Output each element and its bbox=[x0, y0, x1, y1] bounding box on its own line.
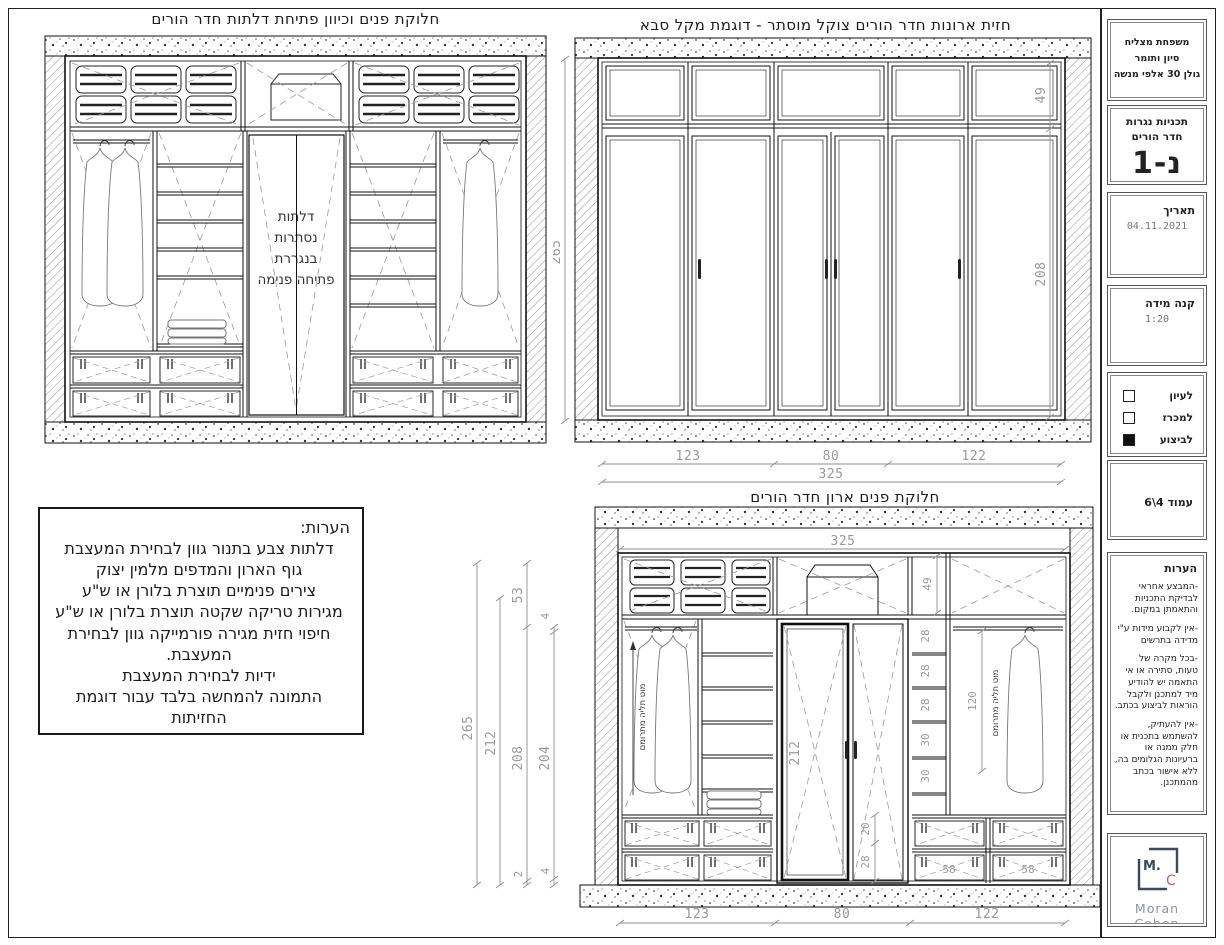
storage-boxes bbox=[76, 66, 519, 123]
note-line: ידיות לבחירת המעצבת bbox=[48, 665, 350, 686]
dim-label: 122 bbox=[975, 907, 1000, 922]
tb-note-item: -אין לקבוע מידות ע"י מדידה בתרשים bbox=[1111, 624, 1203, 647]
status-option-execution[interactable]: לביצוע bbox=[1111, 434, 1203, 446]
tb-note-item: -המבצע אחראי לבדיקת התכניות והתאמתן במקו… bbox=[1111, 582, 1203, 617]
plan-code: נ-1 bbox=[1111, 149, 1203, 179]
folded-towels bbox=[707, 791, 761, 815]
dim-label: 122 bbox=[962, 449, 987, 464]
note-line: צירים פנימיים תוצרת בלורן או ש"ע bbox=[48, 580, 350, 601]
dim-label: 28 bbox=[919, 664, 932, 677]
shelves bbox=[702, 653, 773, 792]
note-line: חיפוי חזית מגירה פורמייקה גוון לבחירת המ… bbox=[48, 623, 350, 665]
cabinet-structure bbox=[598, 58, 1065, 420]
dim-label: 208 bbox=[511, 746, 526, 771]
interior-front-drawing: 325 bbox=[455, 503, 1100, 943]
dim-label: 53 bbox=[511, 587, 526, 604]
general-notes-box: הערות: דלתות צבע בתנור גוון לבחירת המעצב… bbox=[38, 507, 364, 735]
checkbox-checked-icon[interactable] bbox=[1123, 434, 1135, 446]
status-option-review[interactable]: לעיון bbox=[1111, 390, 1203, 402]
checkbox-icon[interactable] bbox=[1123, 390, 1135, 402]
dim-left-labels: 265 212 208 204 53 4 2 4 bbox=[461, 587, 553, 878]
dim-label: 212 bbox=[788, 741, 803, 766]
scale-value: 1:20 bbox=[1111, 314, 1203, 325]
dim-label: 30 bbox=[919, 733, 932, 746]
tb-notes-title: הערות bbox=[1111, 556, 1203, 575]
project-address: גולן 30 אלפי מנשה bbox=[1111, 67, 1203, 83]
titleblock-page: עמוד 4\6 bbox=[1107, 460, 1207, 540]
dim-label: 80 bbox=[834, 907, 851, 922]
logo-initial-c: C bbox=[1166, 873, 1176, 889]
tb-note-item: -אין להעתיק, להשתמש בתכנית או חלק ממנה א… bbox=[1111, 720, 1203, 790]
dim-label: 325 bbox=[831, 534, 856, 549]
hanging-rods bbox=[73, 140, 518, 143]
titleblock-separator bbox=[1100, 8, 1102, 937]
titleblock-plan-type: תכניות נגרות חדר הורים נ-1 bbox=[1107, 105, 1207, 185]
date-value: 04.11.2021 bbox=[1111, 221, 1203, 232]
logo-initial-m: M. bbox=[1143, 859, 1161, 874]
status-label: לעיון bbox=[1169, 390, 1193, 402]
center-door: 212 20 28 bbox=[777, 619, 908, 884]
status-option-tender[interactable]: למכרז bbox=[1111, 412, 1203, 424]
dim-left-column bbox=[473, 560, 558, 888]
shelf-dim-labels: 49 28 28 28 30 30 bbox=[919, 553, 941, 783]
dim-label: 28 bbox=[919, 629, 932, 642]
titleblock-scale: קנה מידה 1:20 bbox=[1107, 285, 1207, 366]
dim-label: 123 bbox=[685, 907, 710, 922]
titleblock-project: משפחת מצליח סיון ותומר גולן 30 אלפי מנשה bbox=[1107, 19, 1207, 101]
box-item bbox=[271, 74, 341, 120]
plan-room: חדר הורים bbox=[1111, 130, 1203, 145]
dim-label: 28 bbox=[859, 855, 872, 868]
dim-label: 58 bbox=[1021, 863, 1034, 876]
note-line: התמונה להמחשה בלבד עבור דוגמת החזיתות bbox=[48, 686, 350, 728]
dim-label: 49 bbox=[921, 577, 934, 590]
titleblock-logo: M. C Moran Cohen עיצוב ותיכנון פנים bbox=[1107, 833, 1207, 927]
interior-plan-drawing: דלתות נסתרות בנגררת פתיחה פנימה bbox=[43, 24, 548, 449]
dim-top-width: 325 bbox=[616, 534, 1069, 552]
plan-type: תכניות נגרות bbox=[1111, 115, 1203, 130]
dim-label: 80 bbox=[823, 449, 840, 464]
titleblock-notes: הערות -המבצע אחראי לבדיקת התכניות והתאמת… bbox=[1107, 552, 1207, 815]
door-handles bbox=[698, 259, 961, 279]
dim-label: 2 bbox=[512, 871, 525, 878]
dim-label: 20 bbox=[859, 822, 872, 835]
front-elevation-drawing: 265 49 208 123 80 122 325 bbox=[553, 24, 1098, 489]
dim-label: 265 bbox=[461, 716, 476, 741]
dim-label: 120 bbox=[966, 691, 979, 711]
notes-title: הערות: bbox=[48, 517, 350, 538]
project-clients: סיון ותומר bbox=[1111, 51, 1203, 67]
status-label: למכרז bbox=[1163, 412, 1193, 424]
folded-towels bbox=[168, 320, 226, 344]
dim-label: 208 bbox=[1034, 262, 1049, 287]
drawing-sheet: חלוקת פנים וכיוון פתיחת דלתות חדר הורים … bbox=[0, 0, 1224, 945]
drawers bbox=[73, 357, 518, 416]
status-label: לביצוע bbox=[1160, 434, 1193, 446]
dim-label: 265 bbox=[553, 240, 564, 265]
transom-panels bbox=[606, 66, 1057, 120]
rod-label: מוט תליה מתרומם bbox=[638, 684, 648, 751]
dim-label: 4 bbox=[539, 867, 552, 874]
drawers bbox=[622, 815, 1066, 883]
dim-label: 49 bbox=[1034, 87, 1049, 104]
note-line: דלתות צבע בתנור גוון לבחירת המעצבת bbox=[48, 538, 350, 559]
box-item bbox=[807, 565, 878, 615]
titleblock-status: לעיון למכרז לביצוע bbox=[1107, 372, 1207, 457]
dim-label: 204 bbox=[538, 746, 553, 771]
logo-name: Moran Cohen bbox=[1111, 901, 1203, 924]
dim-label: 123 bbox=[676, 449, 701, 464]
dim-label: 212 bbox=[484, 731, 499, 756]
rod-label: מוט תליה מתרומם bbox=[991, 670, 1001, 737]
dim-label: 4 bbox=[539, 612, 552, 619]
dim-label: 28 bbox=[919, 698, 932, 711]
page-number: עמוד 4\6 bbox=[1111, 464, 1203, 509]
tb-note-item: -בכל מקרה של טעות, סתירה או אי התאמה יש … bbox=[1111, 654, 1203, 712]
walls-and-bands bbox=[575, 38, 1091, 442]
titleblock-date: תאריך 04.11.2021 bbox=[1107, 192, 1207, 278]
checkbox-icon[interactable] bbox=[1123, 412, 1135, 424]
project-family: משפחת מצליח bbox=[1111, 35, 1203, 51]
dim-label: 325 bbox=[819, 467, 844, 482]
scale-label: קנה מידה bbox=[1111, 289, 1203, 310]
dim-label: 58 bbox=[942, 863, 955, 876]
hanging-rods bbox=[625, 627, 1063, 630]
dim-label: 30 bbox=[919, 769, 932, 782]
date-label: תאריך bbox=[1111, 196, 1203, 217]
dim-bottom: 123 80 122 bbox=[616, 907, 1069, 926]
note-line: מגירות טריקה שקטה תוצרת בלורן או ש"ע bbox=[48, 601, 350, 622]
logo-mark: M. C bbox=[1111, 843, 1203, 895]
note-line: גוף הארון והמדפים מלמין יצוק bbox=[48, 559, 350, 580]
